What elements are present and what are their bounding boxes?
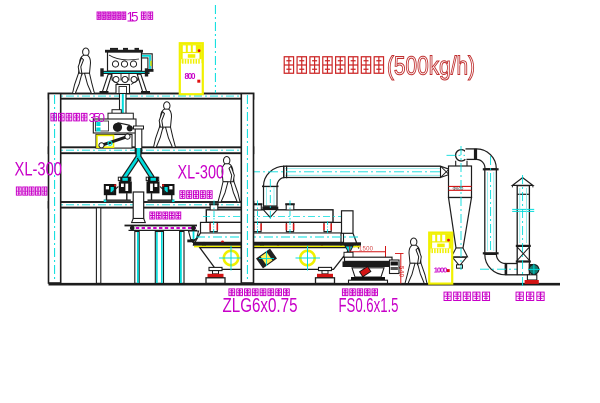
svg-text:FS0.6x1.5: FS0.6x1.5 xyxy=(339,295,399,317)
svg-text:Φ600: Φ600 xyxy=(453,186,464,191)
svg-text:ZLG6x0.75: ZLG6x0.75 xyxy=(223,295,298,317)
svg-text:800: 800 xyxy=(185,72,197,81)
svg-text:1000: 1000 xyxy=(434,266,448,275)
svg-text:350: 350 xyxy=(89,111,106,125)
svg-text:540: 540 xyxy=(398,266,404,278)
svg-text:1.5: 1.5 xyxy=(127,9,139,24)
svg-text:1500: 1500 xyxy=(359,246,374,252)
svg-text:(500kg/h): (500kg/h) xyxy=(387,51,475,81)
svg-text:XL-300: XL-300 xyxy=(178,163,225,184)
svg-text:XL-300: XL-300 xyxy=(15,160,63,181)
